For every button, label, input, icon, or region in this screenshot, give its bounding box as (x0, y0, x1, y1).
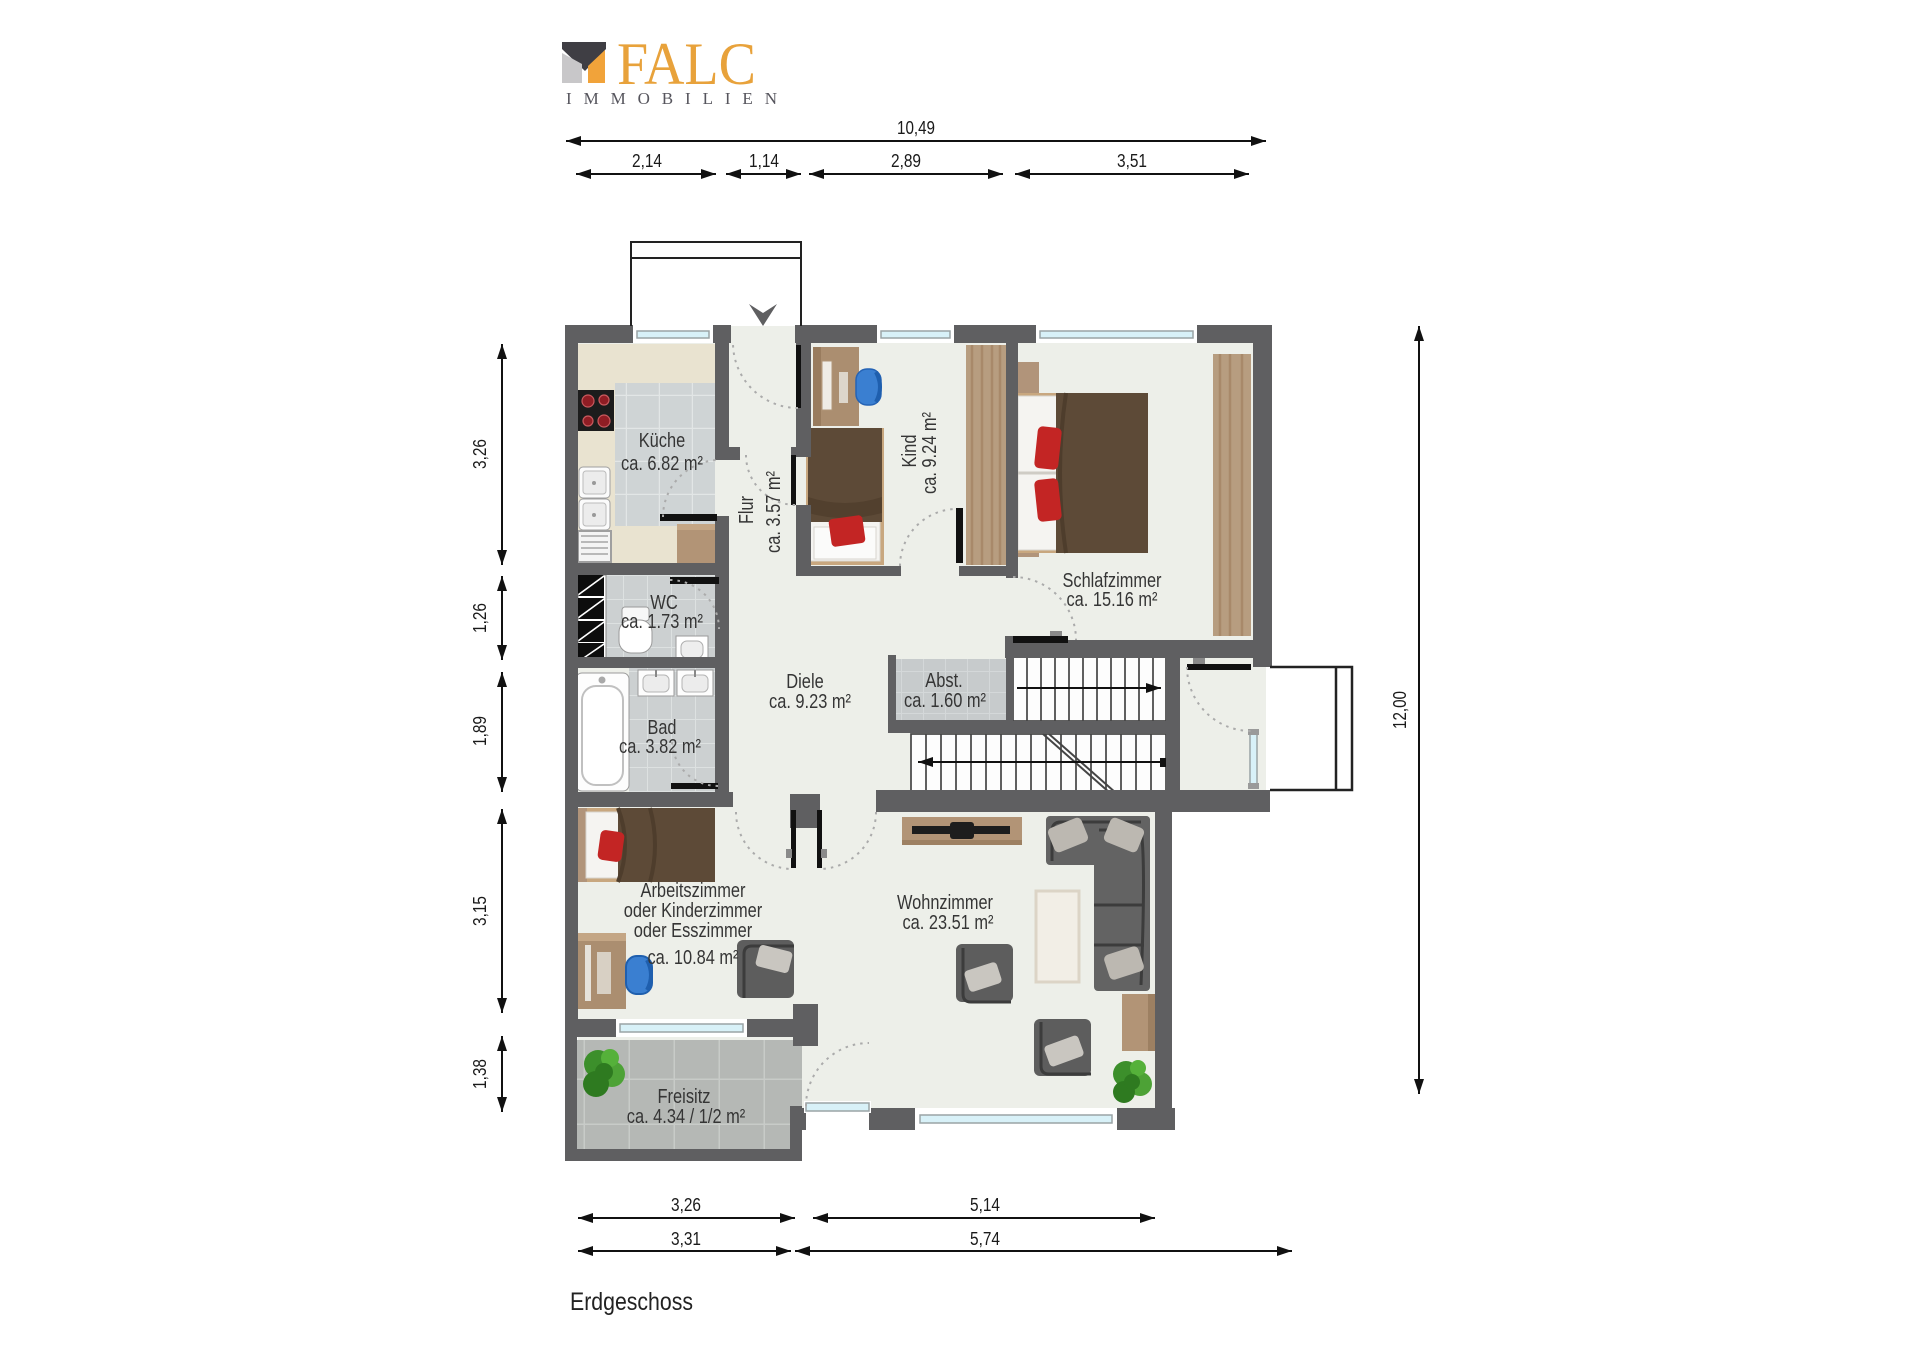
svg-text:ca. 10.84 m²: ca. 10.84 m² (648, 947, 739, 969)
svg-text:Küche: Küche (639, 430, 686, 452)
svg-text:IMMOBILIEN: IMMOBILIEN (566, 89, 777, 108)
svg-text:1,26: 1,26 (469, 603, 490, 633)
svg-text:ca. 3.82 m²: ca. 3.82 m² (619, 736, 701, 758)
svg-text:oder Esszimmer: oder Esszimmer (634, 920, 753, 942)
svg-text:10,49: 10,49 (897, 117, 935, 138)
svg-text:3,31: 3,31 (671, 1228, 701, 1249)
svg-text:Diele: Diele (786, 671, 824, 693)
svg-text:Freisitz: Freisitz (658, 1086, 711, 1108)
svg-text:FALC: FALC (617, 31, 756, 97)
svg-text:ca. 9.24 m²: ca. 9.24 m² (919, 412, 941, 494)
svg-text:ca. 3.57 m²: ca. 3.57 m² (763, 471, 785, 553)
svg-text:1,14: 1,14 (749, 150, 779, 171)
svg-text:12,00: 12,00 (1389, 691, 1410, 729)
svg-text:ca. 1.73 m²: ca. 1.73 m² (621, 611, 703, 633)
svg-text:Flur: Flur (736, 496, 758, 524)
svg-text:1,38: 1,38 (469, 1059, 490, 1089)
svg-text:Erdgeschoss: Erdgeschoss (570, 1288, 693, 1316)
svg-text:2,89: 2,89 (891, 150, 921, 171)
svg-text:ca. 6.82 m²: ca. 6.82 m² (621, 453, 703, 475)
svg-text:Kind: Kind (899, 435, 921, 468)
svg-text:ca. 15.16 m²: ca. 15.16 m² (1067, 589, 1158, 611)
svg-text:ca. 1.60 m²: ca. 1.60 m² (904, 690, 986, 712)
svg-text:3,26: 3,26 (469, 439, 490, 469)
svg-text:Arbeitszimmer: Arbeitszimmer (641, 880, 746, 902)
svg-text:1,89: 1,89 (469, 716, 490, 746)
svg-text:ca. 4.34 / 1/2 m²: ca. 4.34 / 1/2 m² (627, 1106, 746, 1128)
svg-text:ca. 9.23 m²: ca. 9.23 m² (769, 691, 851, 713)
svg-text:3,15: 3,15 (469, 896, 490, 926)
svg-text:5,14: 5,14 (970, 1194, 1000, 1215)
svg-text:ca. 23.51 m²: ca. 23.51 m² (903, 912, 994, 934)
svg-text:3,51: 3,51 (1117, 150, 1147, 171)
svg-text:Wohnzimmer: Wohnzimmer (897, 892, 993, 914)
svg-text:Abst.: Abst. (925, 670, 963, 692)
svg-text:5,74: 5,74 (970, 1228, 1000, 1249)
svg-text:3,26: 3,26 (671, 1194, 701, 1215)
svg-text:2,14: 2,14 (632, 150, 662, 171)
svg-text:oder Kinderzimmer: oder Kinderzimmer (624, 900, 763, 922)
